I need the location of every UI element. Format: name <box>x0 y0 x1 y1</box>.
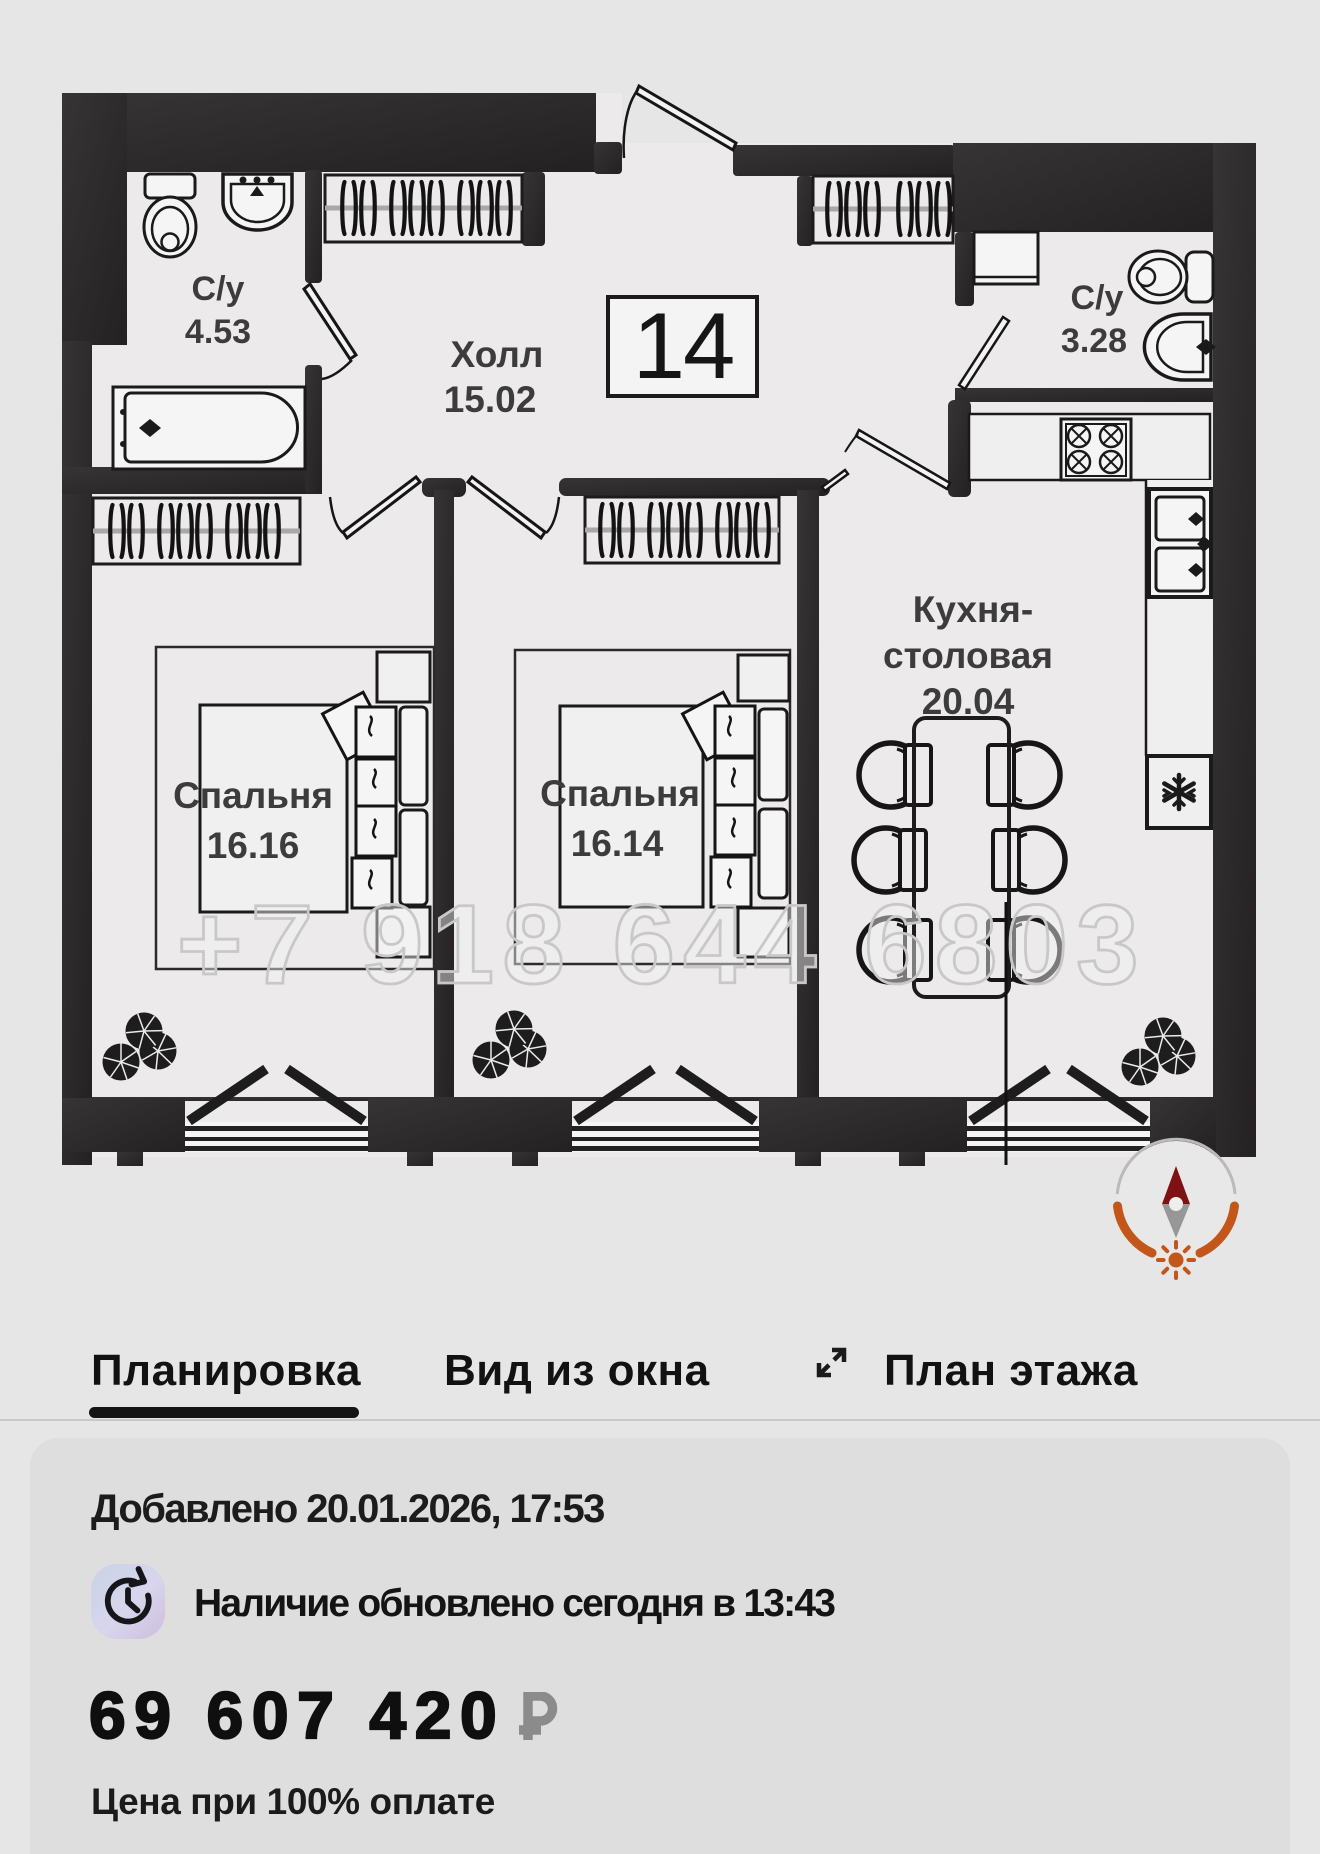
svg-text:С/у: С/у <box>192 270 245 308</box>
svg-text:столовая: столовая <box>883 635 1053 676</box>
svg-text:Спальня: Спальня <box>540 773 700 814</box>
svg-text:Спальня: Спальня <box>173 775 333 816</box>
svg-text:3.28: 3.28 <box>1061 322 1127 360</box>
svg-text:20.04: 20.04 <box>922 681 1015 722</box>
svg-text:Кухня-: Кухня- <box>913 589 1033 630</box>
svg-text:14: 14 <box>633 293 734 398</box>
svg-text:4.53: 4.53 <box>185 313 251 351</box>
svg-text:Холл: Холл <box>451 334 544 375</box>
svg-text:+7 918 644 6803: +7 918 644 6803 <box>177 882 1147 1007</box>
svg-text:С/у: С/у <box>1071 279 1124 317</box>
svg-text:16.16: 16.16 <box>207 825 300 866</box>
svg-text:16.14: 16.14 <box>571 823 664 864</box>
svg-text:15.02: 15.02 <box>444 379 537 420</box>
